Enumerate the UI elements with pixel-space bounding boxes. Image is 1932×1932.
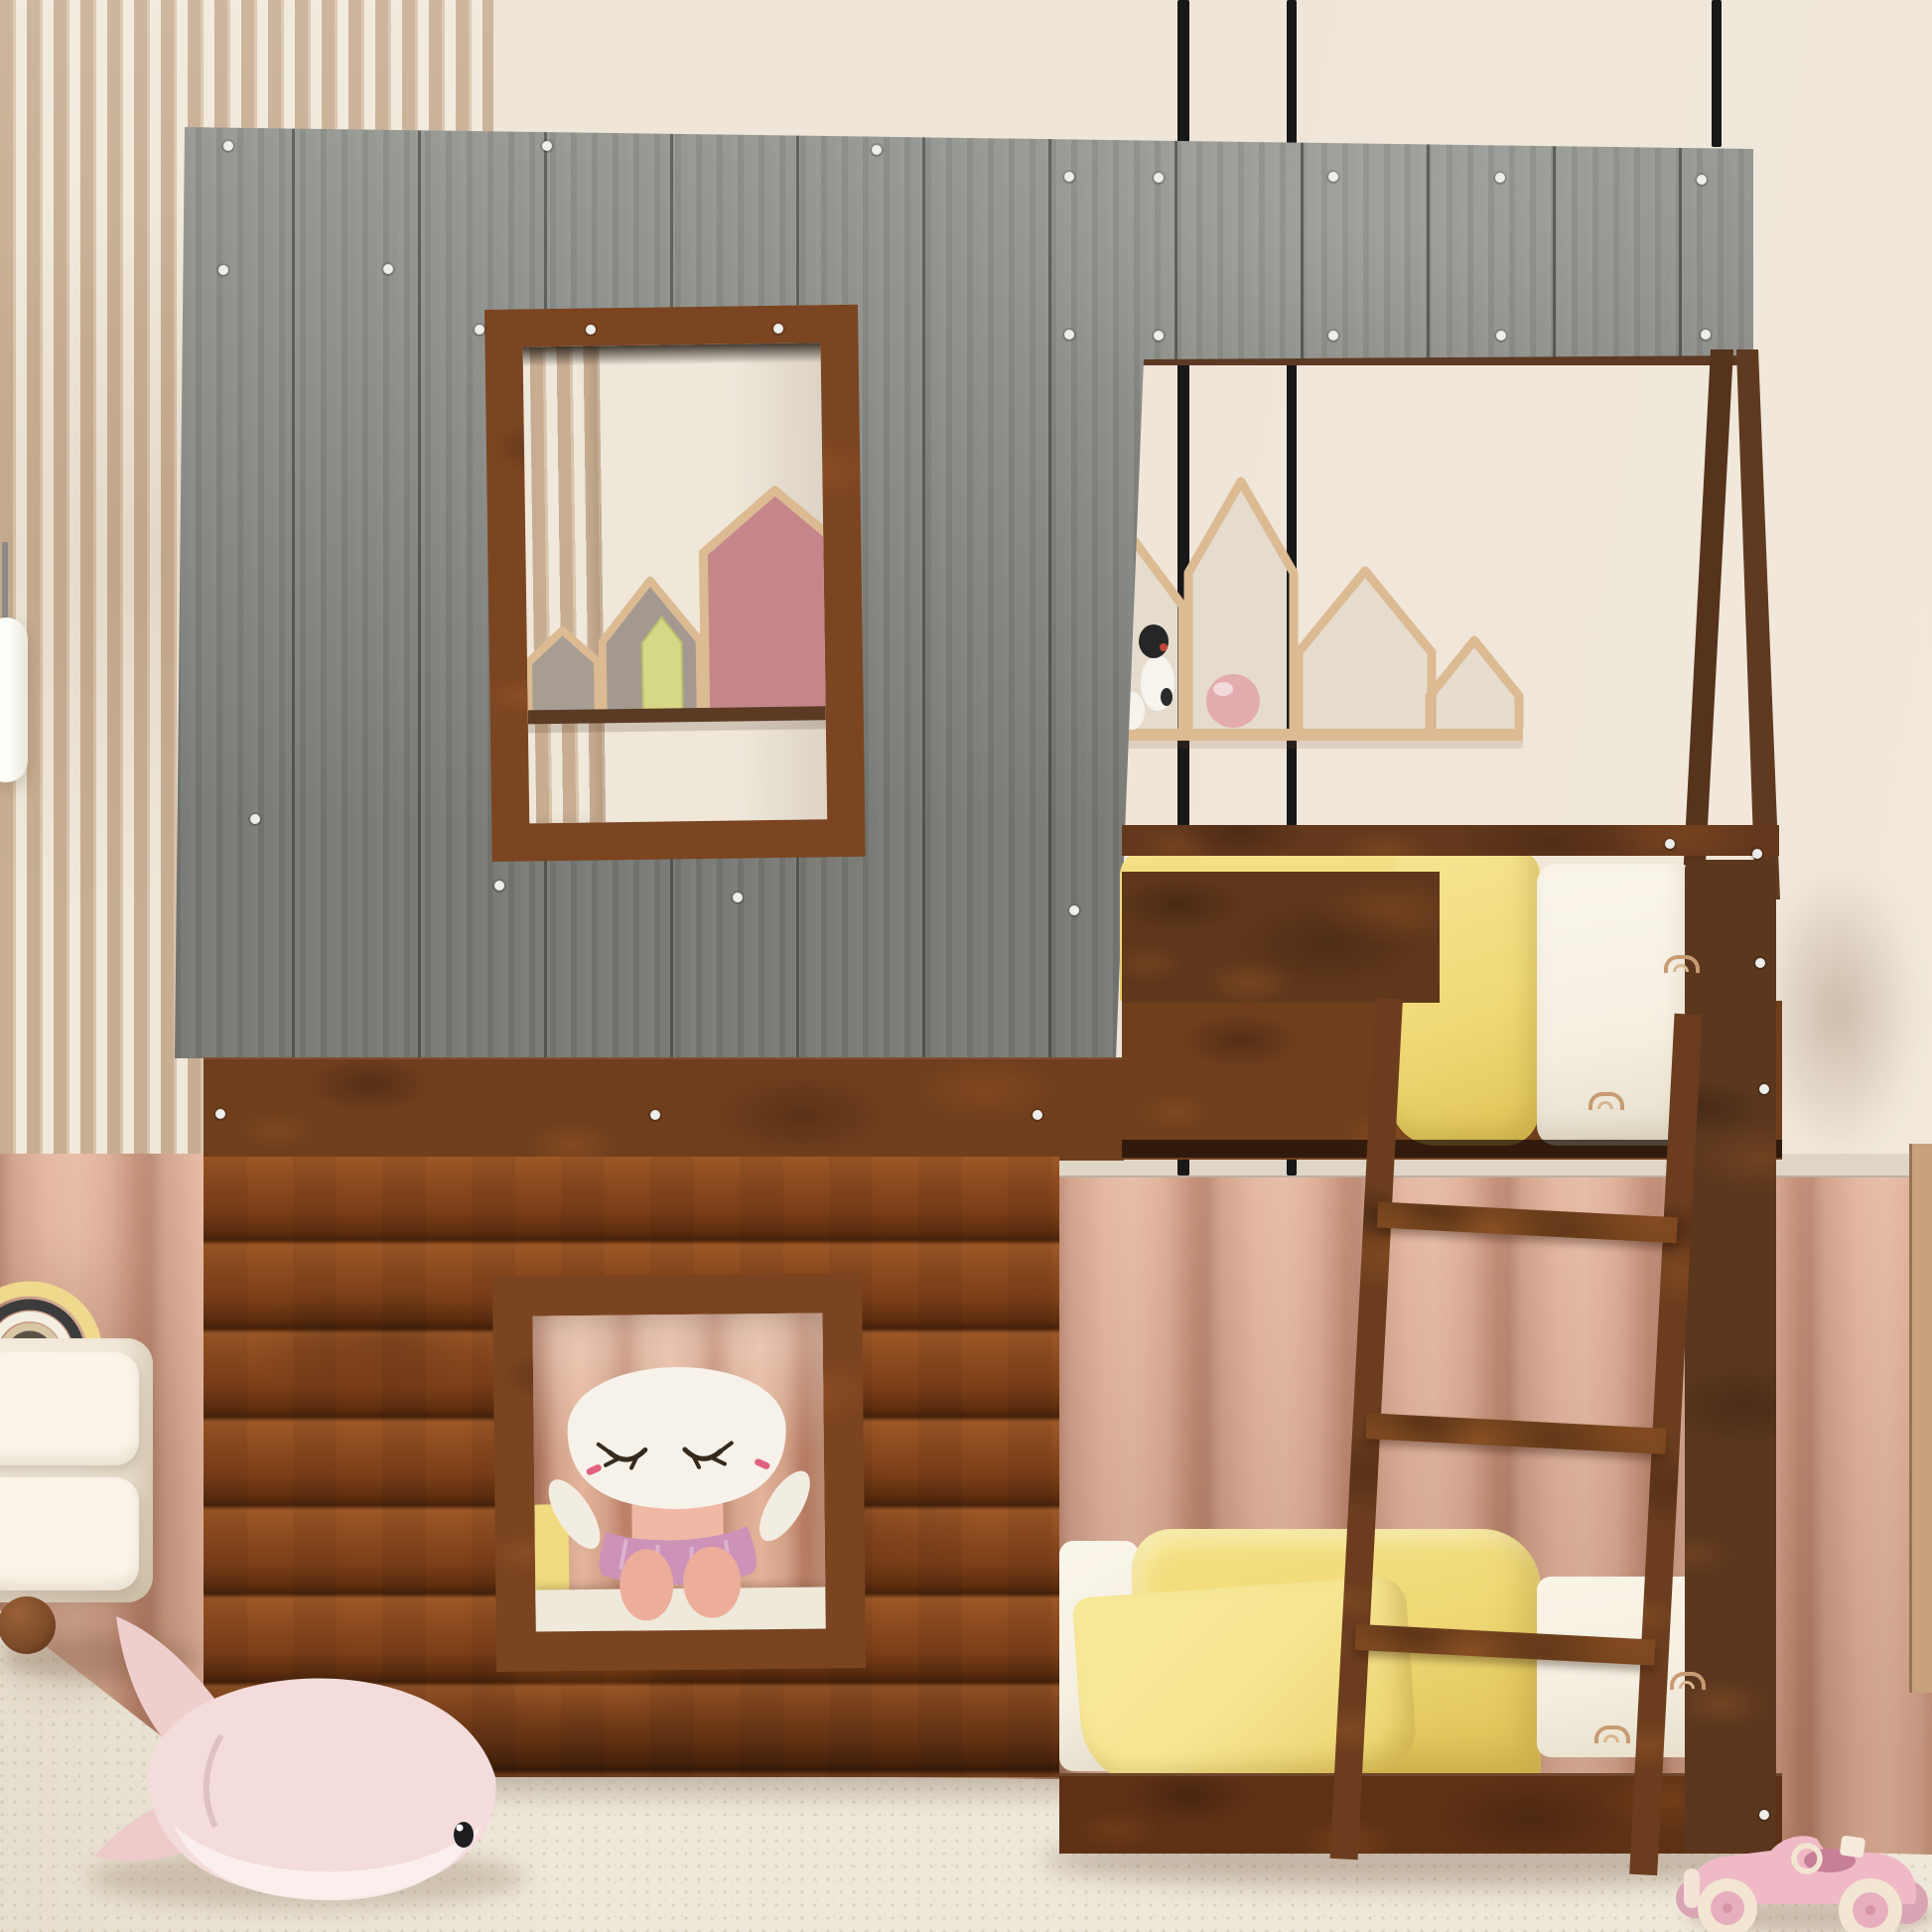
cabin-top-band bbox=[204, 1057, 1124, 1161]
figurine-spot bbox=[1161, 688, 1173, 706]
house-shelf-4 bbox=[1430, 640, 1519, 729]
small-house-shelf bbox=[528, 629, 599, 712]
car-windshield bbox=[1840, 1835, 1866, 1858]
nightstand-drawer-top bbox=[0, 1352, 139, 1465]
pink-house-shelf bbox=[703, 489, 827, 710]
cabin-window-interior bbox=[532, 1313, 825, 1632]
doll-head bbox=[567, 1366, 786, 1510]
pink-ball bbox=[1206, 674, 1260, 728]
whale-plush bbox=[55, 1587, 531, 1914]
nightstand-ball-foot bbox=[0, 1596, 56, 1654]
roof-window bbox=[484, 305, 866, 862]
whale-eye bbox=[454, 1822, 474, 1848]
toy-race-car bbox=[1676, 1825, 1932, 1932]
cabin-window bbox=[492, 1273, 866, 1672]
gable-beam-left bbox=[1682, 349, 1733, 899]
upper-guard-rail-bar bbox=[1122, 825, 1779, 856]
roof-window-interior bbox=[523, 343, 828, 823]
lamp-cord bbox=[2, 542, 8, 621]
car-bumper bbox=[1684, 1868, 1700, 1908]
figurine-head bbox=[1139, 624, 1169, 658]
wardrobe-edge bbox=[1909, 1144, 1932, 1693]
pendant-lamp bbox=[0, 618, 28, 782]
house-shelf-3 bbox=[1299, 571, 1432, 729]
gable-beam-right bbox=[1736, 349, 1780, 899]
nightstand bbox=[0, 1338, 153, 1602]
kids-room-scene: Kids bedroom product photo: rustic house… bbox=[0, 0, 1932, 1932]
window-house-shelves bbox=[524, 442, 826, 744]
ladder-rung bbox=[1366, 1413, 1667, 1454]
bunk-ladder bbox=[1330, 998, 1713, 1876]
ladder-rung bbox=[1355, 1624, 1656, 1666]
car-hubcap-right bbox=[1865, 1905, 1875, 1915]
car-hubcap-left bbox=[1723, 1903, 1732, 1913]
ladder-rung bbox=[1377, 1201, 1678, 1243]
upper-guard-rail-board bbox=[1122, 872, 1440, 1003]
figurine-dot bbox=[1160, 643, 1168, 651]
whale-eye-glint bbox=[457, 1825, 464, 1832]
plush-doll bbox=[538, 1317, 819, 1628]
nightstand-drawer-bottom bbox=[0, 1477, 139, 1590]
bed-corner-post bbox=[1685, 860, 1776, 1853]
ball-highlight bbox=[1213, 682, 1233, 696]
